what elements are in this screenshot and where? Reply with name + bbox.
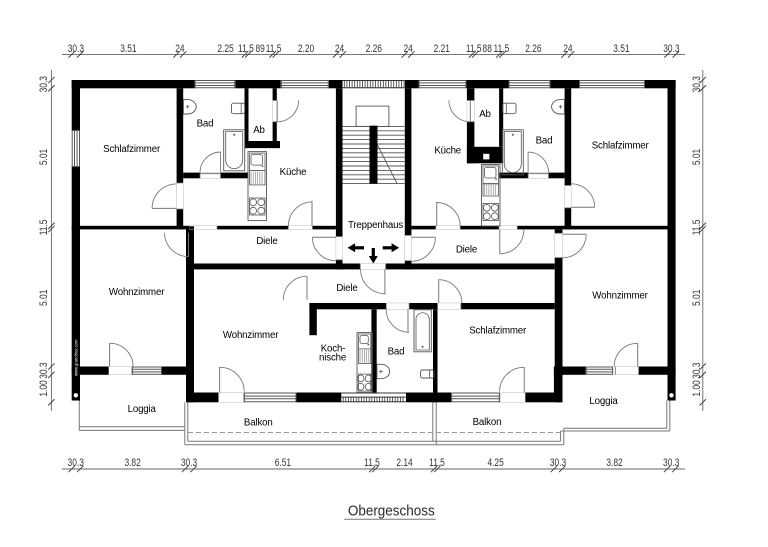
svg-text:30.3: 30.3 [68,43,85,55]
svg-text:Loggia: Loggia [128,404,157,415]
svg-text:Schlafzimmer: Schlafzimmer [592,140,650,151]
svg-text:89: 89 [255,43,265,55]
svg-text:30.3: 30.3 [663,43,680,55]
svg-text:1.00: 1.00 [691,380,703,397]
svg-text:2.26: 2.26 [366,43,383,55]
svg-text:30.3: 30.3 [691,362,703,379]
svg-text:Loggia: Loggia [589,396,618,407]
svg-text:30.3: 30.3 [68,457,85,469]
svg-text:24: 24 [563,43,573,55]
svg-text:3.82: 3.82 [606,457,622,469]
svg-text:Ab: Ab [479,109,491,120]
svg-text:Obergeschoss: Obergeschoss [348,503,435,520]
svg-text:11.5: 11.5 [238,43,254,55]
svg-text:30.3: 30.3 [38,362,50,379]
svg-text:Bad: Bad [536,135,553,146]
svg-text:Bad: Bad [388,347,405,358]
svg-text:2.20: 2.20 [298,43,315,55]
svg-text:30.3: 30.3 [663,457,680,469]
svg-text:24: 24 [335,43,345,55]
svg-text:Diele: Diele [336,283,357,294]
svg-text:30.3: 30.3 [550,457,567,469]
svg-text:Küche: Küche [280,167,307,178]
svg-text:Balkon: Balkon [244,418,273,429]
svg-text:Diele: Diele [456,245,477,256]
svg-text:24: 24 [403,43,413,55]
svg-text:2.26: 2.26 [525,43,542,55]
svg-text:Balkon: Balkon [473,417,502,428]
svg-text:88: 88 [483,43,493,55]
svg-text:11.5: 11.5 [429,457,445,469]
svg-text:30.3: 30.3 [181,457,198,469]
svg-text:11.5: 11.5 [364,457,380,469]
svg-text:11.5: 11.5 [494,43,510,55]
svg-text:Wohnzimmer: Wohnzimmer [592,290,648,301]
svg-text:5.01: 5.01 [38,289,50,306]
svg-text:5.01: 5.01 [691,289,703,306]
svg-text:Bad: Bad [197,118,214,129]
svg-text:3.51: 3.51 [120,43,137,55]
svg-text:2.21: 2.21 [434,43,451,55]
svg-text:Wohnzimmer: Wohnzimmer [109,287,165,298]
svg-text:3.82: 3.82 [124,457,140,469]
svg-text:11.5: 11.5 [691,219,703,235]
svg-text:nische: nische [319,353,346,364]
svg-text:5.01: 5.01 [38,148,50,165]
svg-text:3.51: 3.51 [613,43,630,55]
svg-text:30.3: 30.3 [38,76,50,93]
svg-text:4.25: 4.25 [487,457,504,469]
svg-text:30.3: 30.3 [691,76,703,93]
svg-text:5.01: 5.01 [691,148,703,165]
svg-text:2.25: 2.25 [217,43,234,55]
svg-text:Küche: Küche [434,145,461,156]
svg-text:www.grundriss.com: www.grundriss.com [74,339,79,376]
svg-text:Schlafzimmer: Schlafzimmer [103,144,161,155]
svg-text:Diele: Diele [256,236,277,247]
svg-text:Wohnzimmer: Wohnzimmer [223,330,279,341]
svg-text:11.5: 11.5 [466,43,482,55]
svg-text:Treppenhaus: Treppenhaus [348,220,403,231]
svg-text:1.00: 1.00 [38,380,50,397]
svg-text:11.5: 11.5 [266,43,282,55]
svg-text:6.51: 6.51 [275,457,292,469]
svg-text:Schlafzimmer: Schlafzimmer [469,326,527,337]
svg-text:11.5: 11.5 [38,219,50,235]
svg-text:24: 24 [175,43,185,55]
svg-text:2.14: 2.14 [396,457,413,469]
svg-text:Ab: Ab [253,125,265,136]
